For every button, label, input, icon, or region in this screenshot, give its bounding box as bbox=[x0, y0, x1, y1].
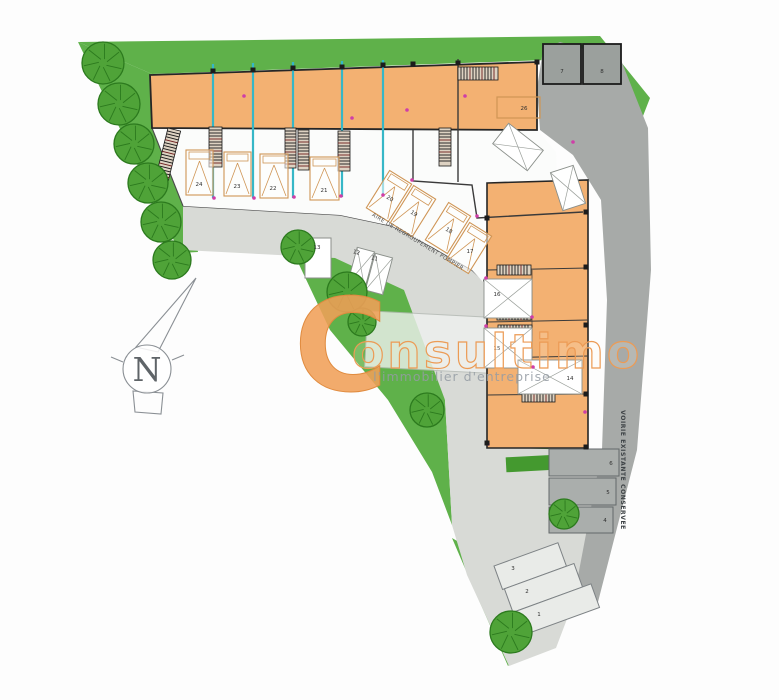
door-marker-dot bbox=[339, 194, 343, 198]
north-arrow-base bbox=[133, 391, 163, 414]
wall-nub bbox=[584, 265, 589, 270]
wall-nub bbox=[485, 216, 490, 221]
site-plan-page: 24232221201918171615141312112678654321 A… bbox=[0, 0, 779, 700]
unit-label: 23 bbox=[234, 184, 241, 190]
wall-nub bbox=[535, 60, 540, 65]
loading-bay bbox=[484, 279, 532, 318]
unit-label: 21 bbox=[321, 188, 328, 194]
door-marker-dot bbox=[212, 196, 216, 200]
stair-hatch bbox=[338, 131, 350, 171]
unit-label: 16 bbox=[494, 292, 501, 298]
wall-nub bbox=[584, 210, 589, 215]
unit-label: 26 bbox=[521, 106, 528, 112]
tree-icon bbox=[82, 42, 124, 84]
door-marker-dot bbox=[405, 108, 409, 112]
parking-stall bbox=[186, 150, 213, 195]
tree-icon bbox=[281, 230, 315, 264]
door-marker-dot bbox=[350, 116, 354, 120]
door-marker-dot bbox=[252, 196, 256, 200]
door-marker-dot bbox=[475, 214, 479, 218]
unit-label: 7 bbox=[560, 69, 564, 75]
door-marker-dot bbox=[292, 195, 296, 199]
stair-hatch bbox=[497, 265, 531, 275]
unit-label: 13 bbox=[314, 245, 321, 251]
wall-nub bbox=[381, 63, 386, 68]
stall-7 bbox=[543, 44, 581, 84]
tree-icon bbox=[98, 83, 140, 125]
unit-label: 8 bbox=[600, 69, 604, 75]
tree-icon bbox=[128, 163, 168, 203]
unit-label: 3 bbox=[511, 566, 515, 572]
wall-nub bbox=[456, 61, 461, 66]
site-plan-figure: 24232221201918171615141312112678654321 A… bbox=[0, 0, 779, 700]
door-marker-dot bbox=[530, 315, 534, 319]
unit-label: 17 bbox=[467, 249, 474, 255]
wall-nub bbox=[584, 392, 589, 397]
tree-icon bbox=[490, 611, 532, 653]
door-marker-dot bbox=[410, 178, 414, 182]
door-marker-dot bbox=[381, 193, 385, 197]
wall-nub bbox=[291, 66, 296, 71]
door-marker-dot bbox=[484, 276, 488, 280]
tree-icon bbox=[153, 241, 191, 279]
wall-nub bbox=[485, 441, 490, 446]
unit-label: 1 bbox=[537, 612, 541, 618]
north-arrow-needle bbox=[136, 278, 196, 352]
unit-label: 5 bbox=[606, 490, 610, 496]
wall-nub bbox=[584, 445, 589, 450]
door-marker-dot bbox=[571, 140, 575, 144]
stair-hatch bbox=[458, 67, 498, 80]
watermark-tagline: l'immobilier d'entreprise bbox=[373, 369, 551, 384]
wall-nub bbox=[340, 65, 345, 70]
door-marker-dot bbox=[242, 94, 246, 98]
north-arrow: N bbox=[111, 278, 196, 414]
unit-label: 22 bbox=[270, 186, 277, 192]
unit-label: 4 bbox=[603, 518, 607, 524]
north-letter: N bbox=[133, 350, 162, 389]
door-marker-dot bbox=[463, 94, 467, 98]
stair-hatch bbox=[439, 128, 451, 166]
unit-label: 2 bbox=[525, 589, 529, 595]
wall-nub bbox=[411, 62, 416, 67]
wall-nub bbox=[251, 68, 256, 73]
tree-icon bbox=[549, 499, 579, 529]
tree-icon bbox=[141, 202, 181, 242]
unit-label: 6 bbox=[609, 461, 613, 467]
stall-8 bbox=[583, 44, 621, 84]
tree-icon bbox=[410, 393, 444, 427]
stair-hatch bbox=[298, 130, 309, 170]
wall-nub bbox=[211, 69, 216, 74]
unit-label: 24 bbox=[196, 182, 203, 188]
door-marker-dot bbox=[583, 410, 587, 414]
existing-road-label: VOIRIE EXISTANTE CONSERVEE bbox=[619, 410, 626, 530]
tree-icon bbox=[114, 124, 154, 164]
